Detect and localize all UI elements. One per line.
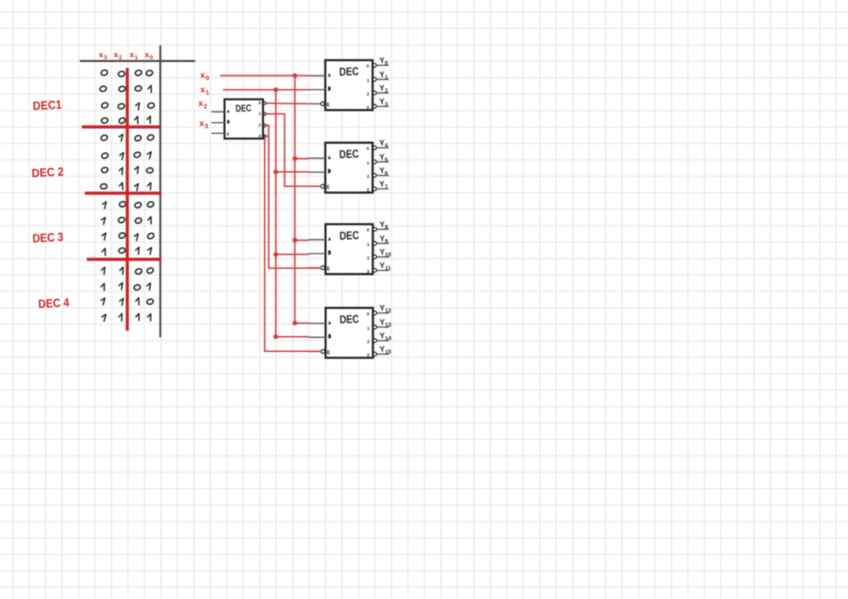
svg-text:8: 8 xyxy=(385,225,389,231)
svg-text:DEC 3: DEC 3 xyxy=(32,230,64,246)
svg-text:0: 0 xyxy=(385,61,389,67)
svg-text:11: 11 xyxy=(385,266,391,272)
svg-text:DEC1: DEC1 xyxy=(32,97,62,113)
svg-text:DEC: DEC xyxy=(235,103,251,115)
svg-text:9: 9 xyxy=(385,239,389,245)
svg-text:12: 12 xyxy=(385,308,392,314)
svg-text:DEC 2: DEC 2 xyxy=(31,165,64,181)
svg-text:7: 7 xyxy=(385,184,389,190)
svg-text:15: 15 xyxy=(385,349,392,355)
svg-text:13: 13 xyxy=(385,322,392,328)
svg-text:6: 6 xyxy=(385,171,389,177)
svg-text:1: 1 xyxy=(385,75,389,81)
svg-text:2: 2 xyxy=(385,88,389,94)
svg-text:ε: ε xyxy=(227,132,230,138)
svg-text:3: 3 xyxy=(385,102,389,108)
svg-text:10: 10 xyxy=(385,252,392,258)
svg-text:DEC 4: DEC 4 xyxy=(38,295,70,311)
svg-text:5: 5 xyxy=(385,157,389,163)
